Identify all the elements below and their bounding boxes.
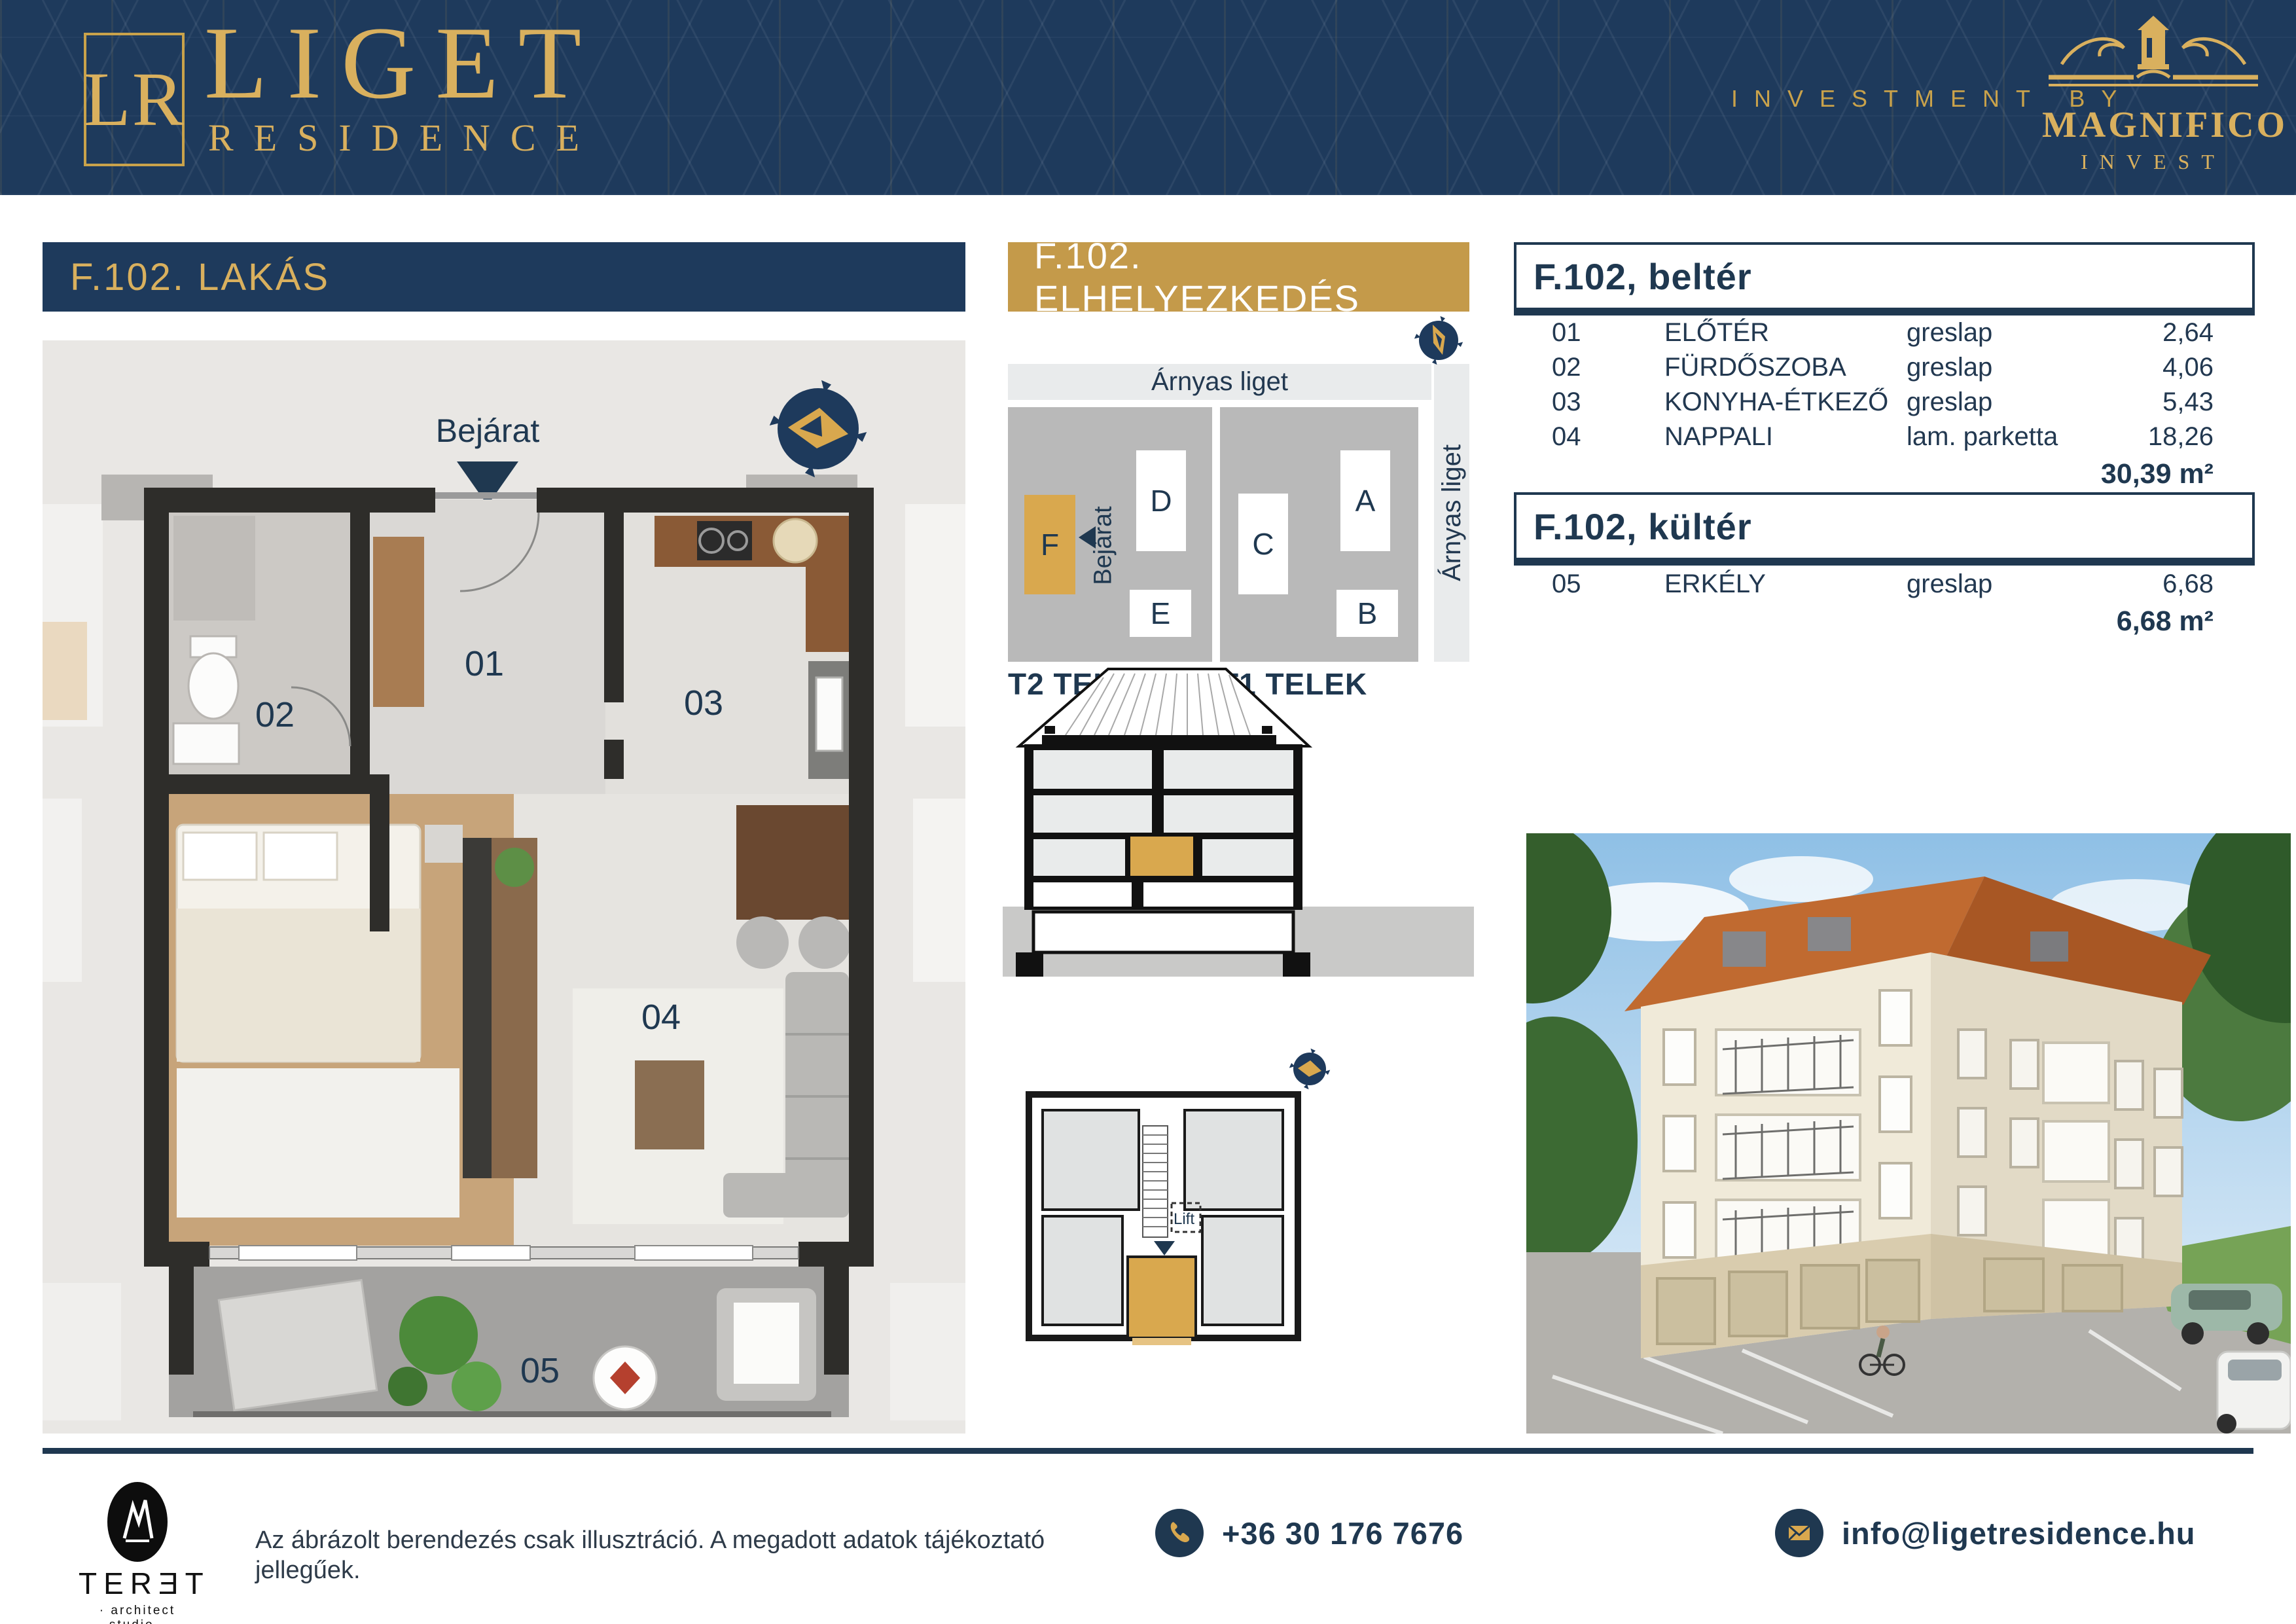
teret-logo-icon <box>106 1481 169 1563</box>
room-area: 6,68 <box>2099 569 2250 599</box>
investor-subname: INVEST <box>2042 150 2265 174</box>
room-finish: greslap <box>1907 353 2099 382</box>
keyplan-highlight-balcony <box>1132 1338 1191 1345</box>
row-number: 05 <box>1514 569 1664 599</box>
studio-name: TERƎT <box>79 1566 196 1601</box>
exterior-table: 05 ERKÉLY greslap 6,68 6,68 m² <box>1514 567 2250 641</box>
interior-table-title: F.102, beltér <box>1516 255 1752 298</box>
room-name: FÜRDŐSZOBA <box>1664 353 1907 382</box>
building-section-diagram <box>1003 664 1474 979</box>
apartment-title: F.102. LAKÁS <box>43 255 330 299</box>
studio-subtitle: · architect studio · <box>79 1604 196 1624</box>
park-label-top: Árnyas liget <box>1008 364 1431 400</box>
room-label-05: 05 <box>520 1351 560 1390</box>
room-finish: greslap <box>1907 569 2099 599</box>
floor-key-plan: Lift <box>1021 1047 1348 1345</box>
site-entrance-text: Bejárat <box>1090 506 1118 585</box>
row-number: 03 <box>1514 388 1664 417</box>
phone-contact[interactable]: +36 30 176 7676 <box>1155 1509 1463 1557</box>
magnifico-ornament-icon <box>2042 12 2265 97</box>
floor-plan-illustration: Bejárat <box>43 340 965 1434</box>
room-finish: lam. parketta <box>1907 422 2099 452</box>
park-right-text: Árnyas liget <box>1437 444 1467 581</box>
phone-icon <box>1155 1509 1204 1557</box>
email-contact[interactable]: info@ligetresidence.hu <box>1775 1509 2196 1557</box>
room-label-01: 01 <box>465 644 504 683</box>
room-name: KONYHA-ÉTKEZŐ <box>1664 388 1907 417</box>
park-top-text: Árnyas liget <box>1151 367 1288 397</box>
site-plan: Árnyas liget Árnyas liget F Bejárat D E … <box>1008 364 1469 695</box>
building-render-image <box>1526 833 2291 1434</box>
exterior-table-title: F.102, kültér <box>1516 505 1752 548</box>
room-name: ELŐTÉR <box>1664 318 1907 348</box>
disclaimer-text: Az ábrázolt berendezés csak illusztráció… <box>255 1525 1145 1585</box>
table-row: 05 ERKÉLY greslap 6,68 <box>1514 567 2250 602</box>
room-label-04: 04 <box>641 998 681 1037</box>
brand-subtitle: RESIDENCE <box>208 119 600 157</box>
table-row: 01 ELŐTÉR greslap 2,64 <box>1514 316 2250 350</box>
room-label-03: 03 <box>684 683 723 723</box>
room-name: ERKÉLY <box>1664 569 1907 599</box>
location-title: F.102. ELHELYEZKEDÉS <box>1008 234 1469 319</box>
room-finish: greslap <box>1907 318 2099 348</box>
interior-total: 30,39 m² <box>1514 454 2250 494</box>
building-f-highlight: F <box>1024 495 1075 594</box>
building-a: A <box>1340 450 1390 551</box>
lr-monogram-logo: LR <box>84 33 185 166</box>
site-entrance-label: Bejárat <box>1089 488 1118 603</box>
row-number: 01 <box>1514 318 1664 348</box>
phone-number[interactable]: +36 30 176 7676 <box>1222 1515 1463 1551</box>
brand-name: LIGET <box>204 12 601 115</box>
header-band: LR LIGET RESIDENCE INVESTMENT BY <box>0 0 2296 195</box>
room-finish: greslap <box>1907 388 2099 417</box>
footer-divider <box>43 1448 2253 1454</box>
magnifico-invest-logo: MAGNIFICO INVEST <box>2042 12 2265 174</box>
room-label-02: 02 <box>255 695 295 734</box>
building-b: B <box>1336 590 1398 637</box>
lift-label: Lift <box>1174 1210 1194 1228</box>
brochure-page: LR LIGET RESIDENCE INVESTMENT BY <box>0 0 2296 1624</box>
room-area: 18,26 <box>2099 422 2250 452</box>
exterior-table-title-box: F.102, kültér <box>1514 492 2255 566</box>
investor-name: MAGNIFICO <box>2042 104 2265 146</box>
entrance-label: Bejárat <box>436 412 540 449</box>
row-number: 04 <box>1514 422 1664 452</box>
keyplan-compass-icon <box>1289 1049 1330 1089</box>
building-d: D <box>1136 450 1186 551</box>
building-e: E <box>1130 590 1191 637</box>
interior-table: 01 ELŐTÉR greslap 2,64 02 FÜRDŐSZOBA gre… <box>1514 316 2250 494</box>
email-icon <box>1775 1509 1823 1557</box>
room-area: 4,06 <box>2099 353 2250 382</box>
building-c: C <box>1238 494 1288 594</box>
table-row: 04 NAPPALI lam. parketta 18,26 <box>1514 420 2250 454</box>
table-row: 02 FÜRDŐSZOBA greslap 4,06 <box>1514 350 2250 385</box>
interior-table-title-box: F.102, beltér <box>1514 242 2255 316</box>
exterior-total: 6,68 m² <box>1514 602 2250 641</box>
table-row: 03 KONYHA-ÉTKEZŐ greslap 5,43 <box>1514 385 2250 420</box>
apartment-title-bar: F.102. LAKÁS <box>43 242 965 312</box>
location-title-bar: F.102. ELHELYEZKEDÉS <box>1008 242 1469 312</box>
site-compass-icon <box>1414 316 1463 365</box>
room-area: 5,43 <box>2099 388 2250 417</box>
lr-monogram-text: LR <box>84 55 185 144</box>
keyplan-highlight-apartment <box>1128 1257 1196 1338</box>
room-name: NAPPALI <box>1664 422 1907 452</box>
architect-studio-logo: TERƎT · architect studio · <box>79 1481 196 1624</box>
email-address[interactable]: info@ligetresidence.hu <box>1842 1515 2196 1551</box>
car-white <box>2217 1352 2291 1434</box>
park-label-right: Árnyas liget <box>1434 364 1469 662</box>
row-number: 02 <box>1514 353 1664 382</box>
section-highlight-apartment <box>1130 837 1193 876</box>
room-area: 2,64 <box>2099 318 2250 348</box>
